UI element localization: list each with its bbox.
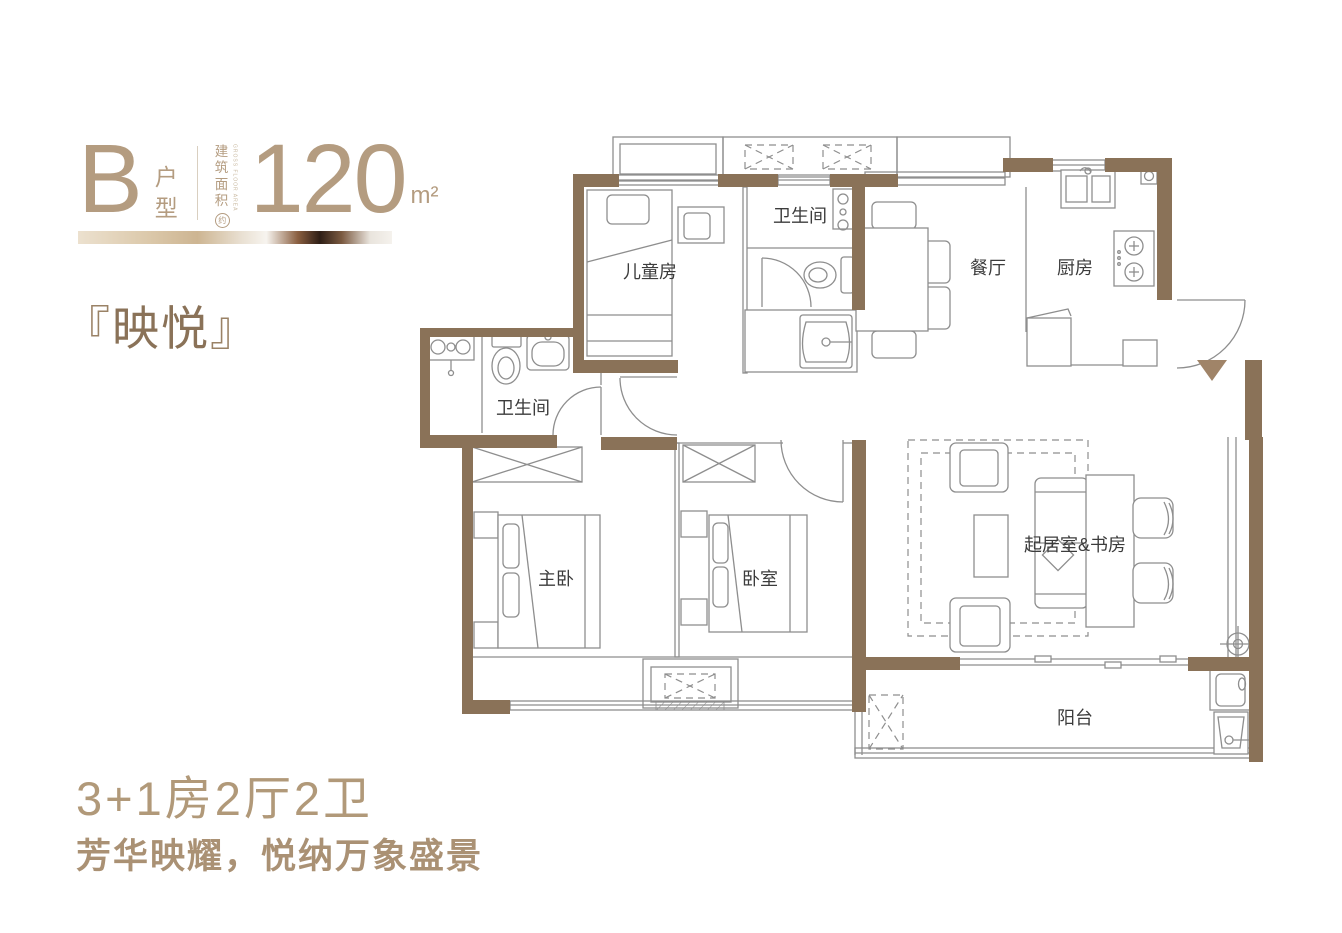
label-kids-room: 儿童房 bbox=[623, 262, 677, 282]
floorplan-svg: 儿童房 卫生间 餐厅 厨房 卫生间 主卧 卧室 起居室&书房 阳台 bbox=[0, 0, 1342, 933]
bathroom-left-fixtures bbox=[426, 334, 569, 384]
label-bathroom-left: 卫生间 bbox=[496, 398, 550, 418]
label-dining-room: 餐厅 bbox=[970, 258, 1006, 278]
master-bedroom-furniture bbox=[472, 447, 600, 648]
label-kitchen: 厨房 bbox=[1057, 258, 1093, 278]
entry-arrow bbox=[1197, 360, 1227, 381]
label-bathroom-top: 卫生间 bbox=[773, 206, 827, 226]
floorplan-page: B 户型 建筑面积 约 GROSS FLOOR AREA 120 m² 『映悦』… bbox=[0, 0, 1342, 933]
label-balcony: 阳台 bbox=[1057, 708, 1093, 728]
label-master-bedroom: 主卧 bbox=[538, 569, 574, 589]
label-bedroom: 卧室 bbox=[742, 569, 778, 589]
bedroom-furniture bbox=[681, 445, 807, 632]
dining-furniture bbox=[856, 202, 950, 358]
label-living-study: 起居室&书房 bbox=[1024, 535, 1126, 555]
